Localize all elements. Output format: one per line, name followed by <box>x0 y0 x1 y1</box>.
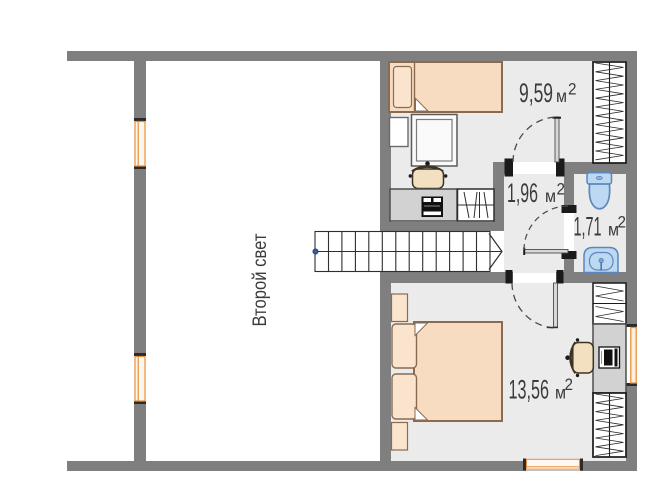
svg-text:2: 2 <box>618 214 627 232</box>
svg-text:13,56: 13,56 <box>509 374 550 404</box>
svg-text:Второй свет: Второй свет <box>250 233 271 326</box>
svg-text:1,71: 1,71 <box>574 212 602 242</box>
svg-text:м: м <box>545 186 556 206</box>
svg-text:2: 2 <box>557 181 566 199</box>
svg-text:1,96: 1,96 <box>507 178 538 208</box>
svg-text:9,59: 9,59 <box>519 78 553 108</box>
svg-text:м: м <box>556 86 567 106</box>
svg-text:2: 2 <box>565 376 574 394</box>
svg-text:2: 2 <box>568 80 577 98</box>
